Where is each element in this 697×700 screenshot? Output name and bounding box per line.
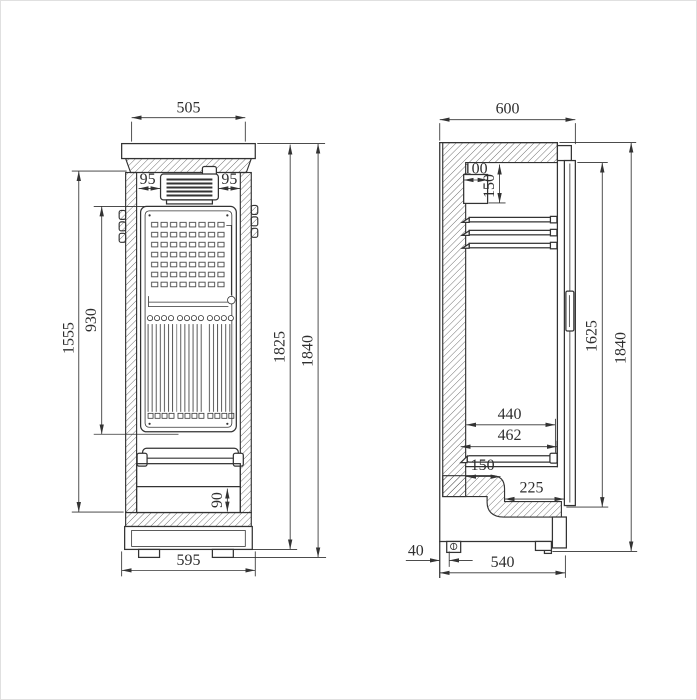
dim-label-40: 40: [408, 542, 424, 559]
dim-label-440: 440: [498, 406, 522, 423]
door-handle: [566, 291, 574, 331]
dim-label-595: 595: [177, 552, 201, 569]
side-view: 600 100 150 440 462 150 225: [406, 101, 637, 578]
floor-step: [443, 476, 562, 517]
shelf-rails: [462, 216, 557, 248]
dim-225: 225: [505, 480, 565, 499]
top-front-step: [557, 146, 571, 161]
door: [564, 161, 575, 506]
coil-group: [176, 315, 203, 418]
dim-label-1555: 1555: [60, 322, 77, 354]
technical-drawing-canvas: 505 95 95 930 1555 90 1825: [0, 0, 697, 700]
dim-label-90: 90: [209, 492, 226, 508]
dim-label-150-bottom: 150: [471, 457, 495, 474]
dim-label-1625: 1625: [583, 320, 600, 352]
shelf: [462, 242, 557, 248]
dim-600: 600: [440, 101, 576, 144]
machine-compartment: [440, 517, 567, 553]
dim-label-95-right: 95: [221, 171, 237, 188]
dim-90: 90: [209, 489, 227, 512]
dim-label-600: 600: [496, 101, 520, 118]
dim-1555: 1555: [60, 171, 126, 512]
dim-505: 505: [132, 100, 246, 142]
coil-group: [147, 315, 174, 418]
top-cap: [122, 144, 256, 173]
dim-label-1825: 1825: [272, 331, 289, 363]
dim-label-505: 505: [177, 100, 201, 117]
dim-label-1840-front: 1840: [300, 335, 317, 367]
condenser-grid: [151, 220, 227, 290]
coil-group: [206, 315, 233, 418]
dim-95-left: 95: [139, 171, 161, 188]
dim-label-1840-side: 1840: [613, 332, 630, 364]
shelf: [462, 229, 557, 235]
shelf: [462, 216, 557, 222]
dim-label-540: 540: [491, 554, 515, 571]
dim-label-930: 930: [83, 308, 100, 332]
dim-95-right: 95: [218, 171, 240, 188]
mid-foot: [535, 541, 551, 550]
dim-1825: 1825: [251, 145, 297, 550]
dim-label-150-top: 150: [481, 174, 498, 198]
condenser-coils: [147, 315, 234, 418]
foot-right: [212, 549, 233, 557]
dim-label-225: 225: [520, 480, 544, 497]
dim-540: 540: [440, 554, 566, 578]
dim-label-462: 462: [498, 427, 522, 444]
front-kick-panel: [552, 517, 566, 548]
foot-left: [139, 549, 160, 557]
dim-label-95-left: 95: [140, 171, 156, 188]
front-view: 505 95 95 930 1555 90 1825: [60, 100, 326, 577]
cabinet-dimension-drawing: 505 95 95 930 1555 90 1825: [1, 1, 696, 699]
